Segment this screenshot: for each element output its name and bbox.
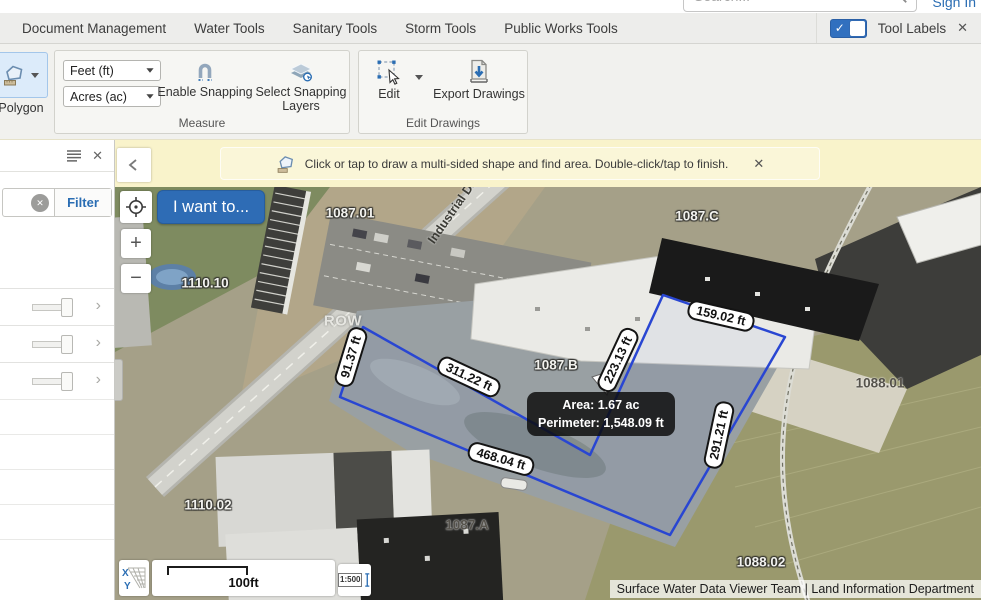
- slider-handle[interactable]: [61, 335, 73, 354]
- map-attribution: Surface Water Data Viewer Team | Land In…: [610, 580, 981, 598]
- opacity-slider[interactable]: [32, 341, 72, 348]
- close-icon[interactable]: ✕: [957, 20, 968, 36]
- instruction-text: Click or tap to draw a multi-sided shape…: [305, 157, 729, 171]
- polygon-tool-highlight: [0, 52, 48, 98]
- area-tooltip: Area: 1.67 ac Perimeter: 1,548.09 ft: [527, 392, 675, 436]
- edit-group-label: Edit Drawings: [359, 116, 527, 130]
- polygon-icon: [276, 154, 296, 174]
- panel-spacer: [0, 217, 114, 288]
- list-item: [0, 469, 114, 504]
- chevron-left-icon: [126, 157, 142, 173]
- polygon-icon: [2, 63, 26, 87]
- magnet-icon: [193, 59, 217, 83]
- menu-document-management[interactable]: Document Management: [8, 21, 180, 36]
- locate-button[interactable]: [120, 191, 152, 223]
- tool-labels-label: Tool Labels: [878, 21, 946, 36]
- menu-sanitary-tools[interactable]: Sanitary Tools: [279, 21, 392, 36]
- area-value: Area: 1.67 ac: [538, 396, 664, 414]
- scale-bar-label: 100ft: [177, 575, 310, 590]
- area-unit-select[interactable]: Acres (ac): [63, 86, 161, 107]
- scale-ratio-value: 1:500: [338, 573, 362, 586]
- search-icon[interactable]: [892, 0, 908, 4]
- crosshair-icon: [125, 196, 147, 218]
- menu-storm-tools[interactable]: Storm Tools: [391, 21, 490, 36]
- chevron-right-icon[interactable]: ›: [96, 371, 101, 389]
- parcel-label: 1088.01: [856, 376, 905, 391]
- app-window: Sign In Document Management Water Tools …: [0, 0, 981, 600]
- layers-icon: [288, 59, 314, 83]
- chevron-right-icon[interactable]: ›: [96, 334, 101, 352]
- layer-row: ›: [0, 288, 114, 325]
- tool-labels-toggle[interactable]: ✓: [830, 19, 867, 38]
- chevron-down-icon[interactable]: [415, 75, 423, 80]
- edit-select-icon: [376, 59, 402, 85]
- panel-resize-grip[interactable]: [115, 359, 123, 401]
- parcel-label: 1087.C: [675, 209, 719, 224]
- top-strip: Sign In: [0, 0, 981, 13]
- parcel-label: 1087.B: [534, 358, 578, 373]
- menu-water-tools[interactable]: Water Tools: [180, 21, 279, 36]
- collapse-panel-button[interactable]: [117, 148, 151, 182]
- scale-widgets: X Y 100ft 1:500: [119, 560, 371, 596]
- menubar-right: ✓ Tool Labels ✕: [816, 13, 981, 43]
- layer-row: ›: [0, 325, 114, 362]
- close-icon[interactable]: ✕: [753, 156, 764, 172]
- scale-ratio-button[interactable]: 1:500: [338, 564, 371, 596]
- scale-bracket: [167, 566, 248, 575]
- coordinates-button[interactable]: X Y: [119, 560, 149, 596]
- polygon-tool-label: Polygon: [0, 101, 48, 115]
- parcel-label: 1087.A: [445, 518, 489, 533]
- parcel-label: 1110.10: [181, 276, 228, 291]
- sign-in-link[interactable]: Sign In: [932, 0, 976, 10]
- search-input[interactable]: [692, 0, 892, 5]
- edit-drawings-group: Edit Export Drawings Edit Drawings: [358, 50, 528, 134]
- menu-bar: Document Management Water Tools Sanitary…: [0, 13, 981, 44]
- layer-row: ›: [0, 362, 114, 399]
- enable-snapping-button[interactable]: Enable Snapping: [157, 59, 253, 99]
- results-panel: ✕ ✕ Filter › › ›: [0, 140, 115, 600]
- distance-unit-select[interactable]: Feet (ft): [63, 60, 161, 81]
- parcel-label: 1110.02: [184, 498, 231, 513]
- svg-text:X: X: [122, 568, 129, 579]
- ribbon-toolbar: Polygon Feet (ft) Acres (ac) Enable Snap…: [0, 44, 981, 140]
- export-icon: [467, 59, 491, 85]
- list-item: [0, 539, 114, 574]
- opacity-slider[interactable]: [32, 378, 72, 385]
- ibeam-icon: [364, 570, 371, 590]
- measure-group: Feet (ft) Acres (ac) Enable Snapping: [54, 50, 350, 134]
- map-canvas[interactable]: I want to... + − 91.37 ft 311.22 ft 223.…: [115, 187, 981, 600]
- toggle-knob: [850, 21, 865, 36]
- slider-handle[interactable]: [61, 298, 73, 317]
- select-snapping-layers-button[interactable]: Select Snapping Layers: [253, 59, 349, 114]
- search-box: [683, 0, 917, 12]
- chevron-down-icon[interactable]: [31, 73, 39, 78]
- polygon-tool-button[interactable]: Polygon: [0, 52, 48, 130]
- export-drawings-button[interactable]: Export Drawings: [431, 59, 527, 101]
- chevron-down-icon: [146, 68, 153, 73]
- list-item: [0, 434, 114, 469]
- opacity-slider[interactable]: [32, 304, 72, 311]
- panel-header: ✕: [0, 140, 114, 172]
- perimeter-value: Perimeter: 1,548.09 ft: [538, 414, 664, 432]
- list-item: [0, 504, 114, 539]
- zoom-in-button[interactable]: +: [121, 229, 151, 258]
- list-item: [0, 399, 114, 434]
- parcel-label: 1087.01: [326, 206, 375, 221]
- chevron-down-icon: [146, 94, 153, 99]
- slider-handle[interactable]: [61, 372, 73, 391]
- scale-bar: 100ft: [152, 560, 335, 596]
- instruction-banner: Click or tap to draw a multi-sided shape…: [115, 140, 981, 187]
- edit-button[interactable]: Edit: [363, 59, 415, 101]
- menu-public-works-tools[interactable]: Public Works Tools: [490, 21, 632, 36]
- filter-button[interactable]: Filter: [54, 189, 111, 216]
- close-icon[interactable]: ✕: [92, 148, 103, 164]
- instruction-box: Click or tap to draw a multi-sided shape…: [220, 147, 820, 180]
- clear-filter-icon[interactable]: ✕: [31, 194, 49, 212]
- zoom-out-button[interactable]: −: [121, 264, 151, 293]
- parcel-label: 1088.02: [737, 555, 786, 570]
- menu-lines-icon[interactable]: [66, 149, 82, 163]
- measure-group-label: Measure: [55, 116, 349, 130]
- chevron-right-icon[interactable]: ›: [96, 297, 101, 315]
- check-icon: ✓: [835, 21, 845, 35]
- i-want-to-button[interactable]: I want to...: [157, 190, 265, 224]
- filter-input[interactable]: ✕: [3, 189, 54, 216]
- xy-grid-icon: X Y: [121, 564, 147, 592]
- filter-bar: ✕ Filter: [2, 188, 112, 217]
- svg-text:Y: Y: [124, 581, 131, 592]
